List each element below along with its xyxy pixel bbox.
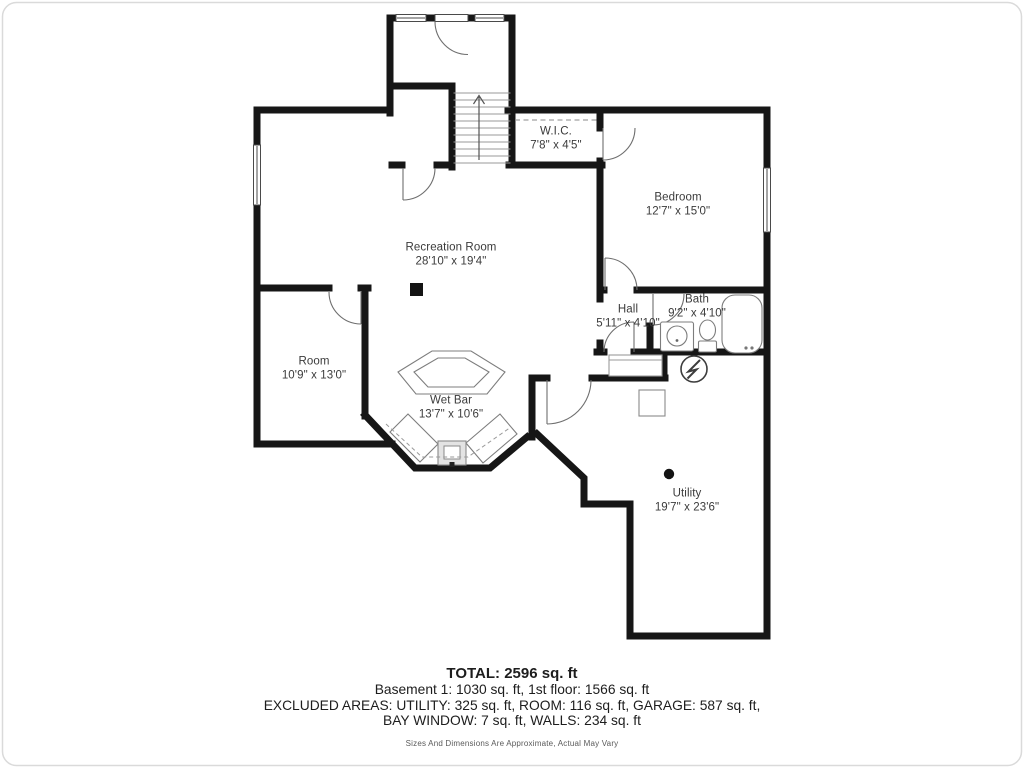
room-dims: 19'7" x 23'6" (655, 501, 719, 515)
room-dims: 13'7" x 10'6" (419, 408, 483, 422)
room-label-recreation: Recreation Room 28'10" x 19'4" (406, 242, 497, 269)
sink-drain (676, 339, 679, 342)
room-label-utility: Utility 19'7" x 23'6" (655, 488, 719, 515)
area-summary: TOTAL: 2596 sq. ft Basement 1: 1030 sq. … (0, 665, 1024, 748)
room-dims: 9'2" x 4'10" (668, 307, 726, 321)
disclaimer: Sizes And Dimensions Are Approximate, Ac… (0, 739, 1024, 748)
room-name: Bedroom (654, 192, 701, 204)
closet-door (403, 168, 435, 200)
room-dims: 10'9" x 13'0" (282, 369, 346, 383)
column-post-square (410, 283, 423, 296)
entry-door-leaf (435, 15, 468, 22)
entry-door-arc (435, 22, 468, 55)
water-heater-icon (681, 356, 707, 382)
wic-door (603, 128, 635, 160)
room-label-wetbar: Wet Bar 13'7" x 10'6" (419, 395, 483, 422)
room-name: Recreation Room (406, 242, 497, 254)
room-dims: 5'11" x 4'10" (596, 317, 660, 331)
excluded-areas-2: BAY WINDOW: 7 sq. ft, WALLS: 234 sq. ft (0, 713, 1024, 729)
sink-basin-icon (667, 326, 687, 346)
room-label-bath: Bath 9'2" x 4'10" (668, 294, 726, 321)
room-label-bedroom: Bedroom 12'7" x 15'0" (646, 192, 710, 219)
room-door (329, 292, 361, 324)
room-dims: 7'8" x 4'5" (530, 139, 581, 153)
floor-areas: Basement 1: 1030 sq. ft, 1st floor: 1566… (0, 682, 1024, 698)
wall-left (257, 110, 390, 444)
bar-sink-drain (450, 462, 455, 467)
wet-bar-island (398, 351, 505, 394)
tub-faucet-dot (744, 346, 747, 349)
room-label-hall: Hall 5'11" x 4'10" (596, 304, 660, 331)
room-name: W.I.C. (540, 126, 572, 138)
stair-treads (454, 93, 511, 163)
room-dims: 28'10" x 19'4" (406, 255, 497, 269)
tub-faucet-dot2 (750, 346, 753, 349)
room-label-room: Room 10'9" x 13'0" (282, 356, 346, 383)
toilet-tank (699, 341, 717, 352)
room-name: Bath (685, 294, 709, 306)
bathtub-icon (722, 295, 762, 353)
room-dims: 12'7" x 15'0" (646, 205, 710, 219)
room-name: Room (298, 356, 329, 368)
bedroom-door (605, 258, 637, 290)
excluded-areas-1: EXCLUDED AREAS: UTILITY: 325 sq. ft, ROO… (0, 698, 1024, 714)
furnace-icon (639, 390, 665, 416)
toilet-bowl-icon (700, 320, 716, 340)
stairs (454, 93, 511, 163)
laundry-cabinet (609, 355, 662, 376)
floor-plan: W.I.C. 7'8" x 4'5" Bedroom 12'7" x 15'0"… (0, 0, 1024, 768)
floor-plan-page: { "plan": { "rooms": [ {"id":"wic","name… (0, 0, 1024, 768)
total-area: TOTAL: 2596 sq. ft (0, 665, 1024, 682)
wall-room (257, 288, 368, 416)
column-post-round (664, 469, 674, 479)
room-name: Hall (618, 304, 638, 316)
utility-door (547, 380, 591, 424)
cabinet-outline (609, 355, 662, 376)
room-name: Utility (673, 488, 702, 500)
room-name: Wet Bar (430, 395, 472, 407)
room-label-wic: W.I.C. 7'8" x 4'5" (530, 126, 581, 153)
floor-plan-drawing (0, 0, 1024, 768)
wall-closet (390, 86, 452, 167)
